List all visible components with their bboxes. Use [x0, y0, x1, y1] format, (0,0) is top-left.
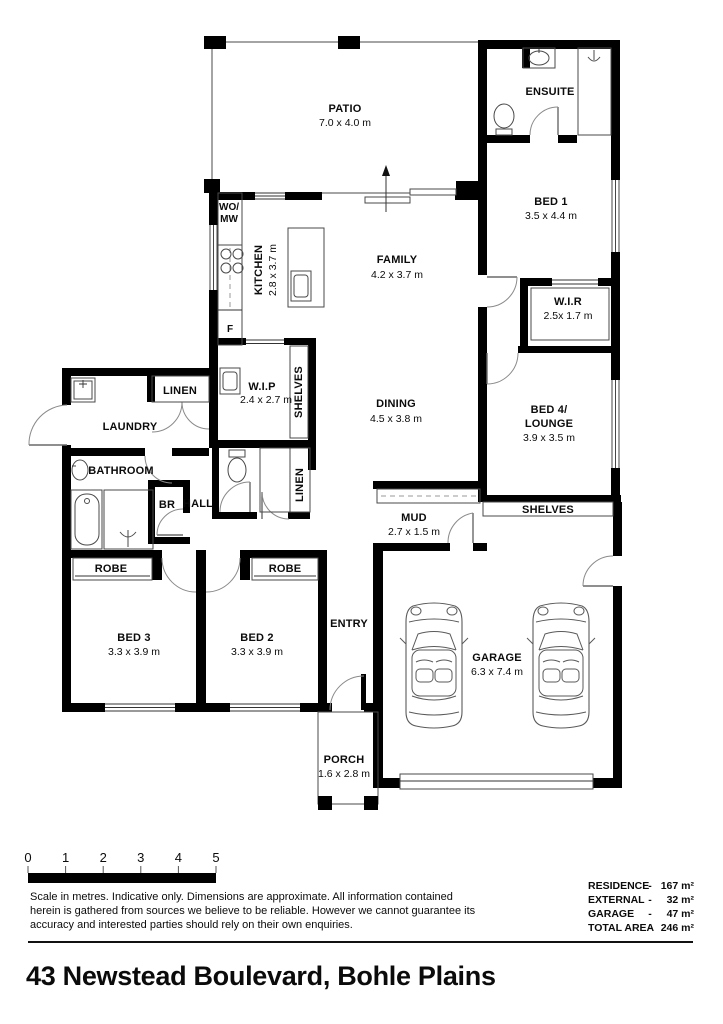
garage-door: [400, 774, 593, 789]
bathroom-label: BATHROOM: [88, 465, 154, 477]
bed2-dims: 3.3 x 3.9 m: [231, 646, 283, 658]
scale-tick-2: 2: [100, 850, 107, 865]
area-row-sep: -: [648, 880, 652, 892]
wall-oven-label1: WO/: [219, 202, 239, 213]
linen-hall-label: LINEN: [294, 468, 306, 502]
bed2-label: BED 2: [240, 632, 273, 644]
window-bed3: [105, 703, 175, 712]
mud-label: MUD: [401, 512, 427, 524]
bed3-label: BED 3: [117, 632, 150, 644]
bed1-dims: 3.5 x 4.4 m: [525, 210, 577, 222]
ensuite-label: ENSUITE: [525, 86, 574, 98]
family-dims: 4.2 x 3.7 m: [371, 269, 423, 281]
robe-left-label: ROBE: [95, 563, 128, 575]
area-row-value: 167 m²: [661, 880, 695, 892]
bed4-dims: 3.9 x 3.5 m: [523, 432, 575, 444]
garage-shelves-label: SHELVES: [522, 504, 574, 516]
area-row-label: TOTAL AREA: [588, 922, 655, 934]
patio-dims: 7.0 x 4.0 m: [319, 117, 371, 129]
car-icon: [400, 603, 468, 728]
address-title: 43 Newstead Boulevard, Bohle Plains: [26, 961, 496, 991]
window-bed4: [611, 380, 620, 468]
scale-tick-5: 5: [212, 850, 219, 865]
scale-tick-0: 0: [24, 850, 31, 865]
area-row-label: EXTERNAL: [588, 894, 645, 906]
kitchen-label: KITCHEN: [253, 245, 265, 295]
garage-label: GARAGE: [472, 652, 521, 664]
window-kitchen-top: [255, 192, 285, 200]
car-icon: [527, 603, 595, 728]
area-row-value: 246 m²: [661, 922, 695, 934]
area-row-sep: -: [648, 922, 652, 934]
wip-dims: 2.4 x 2.7 m: [240, 394, 292, 406]
floorplan-canvas: PATIO 7.0 x 4.0 m ENSUITE BED 1 3.5 x 4.…: [0, 0, 723, 1024]
robe-right-label: ROBE: [269, 563, 302, 575]
window-kitchen-left: [209, 225, 218, 290]
bed4-label1: BED 4/: [531, 404, 568, 416]
area-row-sep: -: [648, 908, 652, 920]
area-row-label: RESIDENCE: [588, 880, 649, 892]
family-label: FAMILY: [377, 254, 418, 266]
scale-tick-1: 1: [62, 850, 69, 865]
window-bed2: [230, 703, 300, 712]
area-row-label: GARAGE: [588, 908, 634, 920]
wip-label: W.I.P: [248, 381, 275, 393]
dining-dims: 4.5 x 3.8 m: [370, 413, 422, 425]
wall-oven-label2: MW: [220, 214, 238, 225]
wir-label: W.I.R: [554, 296, 582, 308]
patio-label: PATIO: [329, 103, 362, 115]
bed3-dims: 3.3 x 3.9 m: [108, 646, 160, 658]
bed1-label: BED 1: [534, 196, 567, 208]
fridge-label: F: [227, 324, 233, 335]
window-bed1: [611, 180, 620, 252]
entry-label: ENTRY: [330, 618, 368, 630]
wip-shelves-label: SHELVES: [293, 366, 305, 418]
garage-dims: 6.3 x 7.4 m: [471, 666, 523, 678]
linen-top-label: LINEN: [163, 385, 197, 397]
disclaimer-line1: Scale in metres. Indicative only. Dimens…: [30, 891, 453, 903]
divider-rule: [28, 941, 693, 943]
kitchen-dims: 2.8 x 3.7 m: [267, 244, 279, 296]
scale-bar-fill: [28, 873, 216, 883]
wir-dims: 2.5x 1.7 m: [543, 310, 592, 322]
mud-dims: 2.7 x 1.5 m: [388, 526, 440, 538]
dining-label: DINING: [376, 398, 416, 410]
scale-tick-3: 3: [137, 850, 144, 865]
porch-dims: 1.6 x 2.8 m: [318, 768, 370, 780]
porch-label: PORCH: [324, 754, 365, 766]
br-label: BR: [159, 499, 175, 511]
area-row-value: 47 m²: [667, 908, 695, 920]
bed4-label2: LOUNGE: [525, 418, 573, 430]
area-row-sep: -: [648, 894, 652, 906]
disclaimer-line2: herein is gathered from sources we belie…: [30, 905, 476, 917]
hall-label: HALL: [183, 498, 213, 510]
scale-tick-4: 4: [175, 850, 182, 865]
disclaimer-line3: accuracy and interested parties should r…: [30, 919, 353, 931]
area-row-value: 32 m²: [667, 894, 695, 906]
laundry-label: LAUNDRY: [103, 421, 158, 433]
